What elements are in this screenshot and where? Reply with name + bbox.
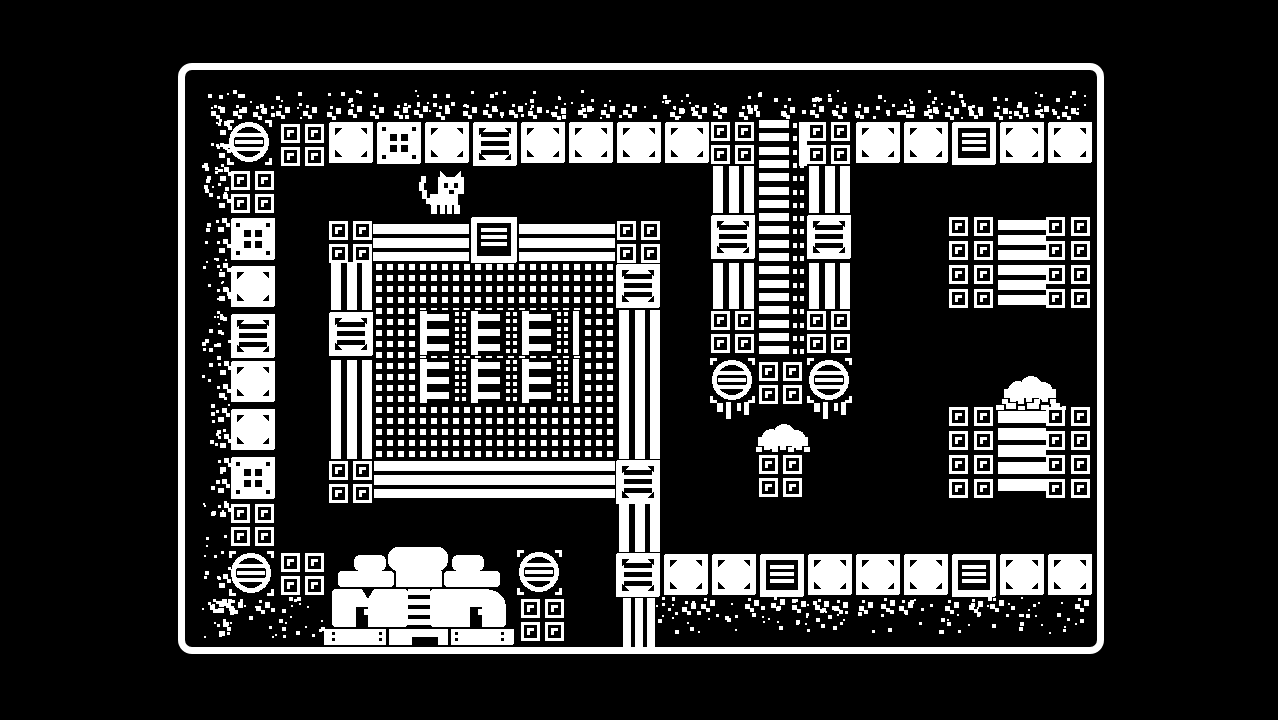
horizontal-beam (373, 224, 469, 261)
bunker-house (324, 547, 514, 645)
rivet-squares-block (807, 311, 850, 353)
round-grate-tile (710, 358, 755, 426)
rivet-squares-column (1046, 217, 1090, 308)
mushroom-dome (1000, 376, 1060, 404)
vertical-beam (331, 360, 372, 459)
metal-plate-tile (664, 554, 708, 595)
rivet-squares-block (231, 171, 274, 213)
metal-plate-tile (808, 554, 852, 595)
shelf-bars (998, 411, 1046, 491)
ladder-block-tile (807, 215, 851, 259)
rivet-squares-block (281, 553, 324, 595)
dotted-block-tile (377, 122, 421, 164)
vertical-beam (619, 502, 660, 552)
rivet-squares-block (711, 122, 754, 164)
vent-row (420, 358, 580, 404)
dirt-speckle-decor (206, 597, 328, 639)
ladder-block-tile (616, 460, 660, 504)
ladder-block-tile (231, 314, 275, 358)
ladder-block-tile (329, 312, 373, 356)
metal-plate-tile (329, 122, 373, 163)
game-scene[interactable] (0, 0, 1278, 720)
rivet-squares-block (759, 362, 802, 404)
dirt-speckle-decor (656, 597, 1096, 635)
vertical-beam (713, 166, 754, 213)
metal-plate-tile (425, 122, 469, 163)
metal-plate-tile (231, 361, 275, 402)
crate-tile (760, 554, 804, 597)
vent-row (420, 310, 580, 356)
metal-plate-tile (521, 122, 565, 163)
rivet-squares-block (807, 122, 850, 164)
round-grate-tile (517, 550, 562, 595)
metal-plate-tile (569, 122, 613, 163)
horizontal-beam (519, 224, 615, 261)
metal-plate-tile (665, 122, 709, 163)
vertical-beam (809, 263, 850, 309)
rivet-squares-block (329, 221, 372, 263)
ladder-block-tile (616, 264, 660, 308)
rivet-squares-block (759, 455, 802, 497)
metal-plate-tile (231, 409, 275, 450)
rivet-squares-block (231, 504, 274, 546)
vertical-beam (713, 263, 754, 309)
dirt-speckle-decor (202, 118, 232, 640)
metal-plate-tile (1000, 122, 1044, 163)
dotted-block-tile (231, 457, 275, 499)
metal-plate-tile (712, 554, 756, 595)
rivet-squares-block (711, 311, 754, 353)
mushroom-dome (754, 424, 812, 452)
round-grate-tile (229, 551, 274, 596)
metal-plate-tile (856, 122, 900, 163)
vertical-beam (623, 598, 655, 650)
rivet-squares-column (1046, 407, 1090, 498)
rivet-squares-block (281, 124, 324, 166)
metal-plate-tile (904, 554, 948, 595)
metal-plate-tile (1048, 554, 1092, 595)
game-stage (0, 0, 1278, 720)
rivet-squares-column (949, 407, 993, 498)
conveyor-ladder (757, 120, 807, 360)
vertical-beam (619, 310, 660, 459)
crate-tile (952, 122, 996, 165)
dotted-block-tile (231, 218, 275, 260)
ladder-block-tile (711, 215, 755, 259)
rivet-squares-block (521, 599, 564, 641)
metal-plate-tile (617, 122, 661, 163)
round-grate-tile (807, 358, 852, 426)
rivet-squares-column (949, 217, 993, 308)
metal-plate-tile (231, 266, 275, 307)
round-grate-tile (227, 120, 272, 165)
vertical-beam (809, 166, 850, 213)
metal-plate-tile (904, 122, 948, 163)
crate-tile (471, 217, 517, 263)
metal-plate-tile (856, 554, 900, 595)
shelf-bars (998, 220, 1046, 305)
player-cat (416, 170, 468, 224)
metal-plate-tile (1000, 554, 1044, 595)
ladder-block-tile (616, 553, 660, 597)
dirt-speckle-decor (206, 90, 1092, 120)
horizontal-beam (374, 461, 615, 498)
rivet-squares-block (329, 461, 372, 503)
rivet-squares-block (617, 221, 660, 263)
crate-tile (952, 554, 996, 597)
vertical-beam (331, 262, 372, 310)
metal-plate-tile (1048, 122, 1092, 163)
ladder-block-tile (473, 122, 517, 166)
